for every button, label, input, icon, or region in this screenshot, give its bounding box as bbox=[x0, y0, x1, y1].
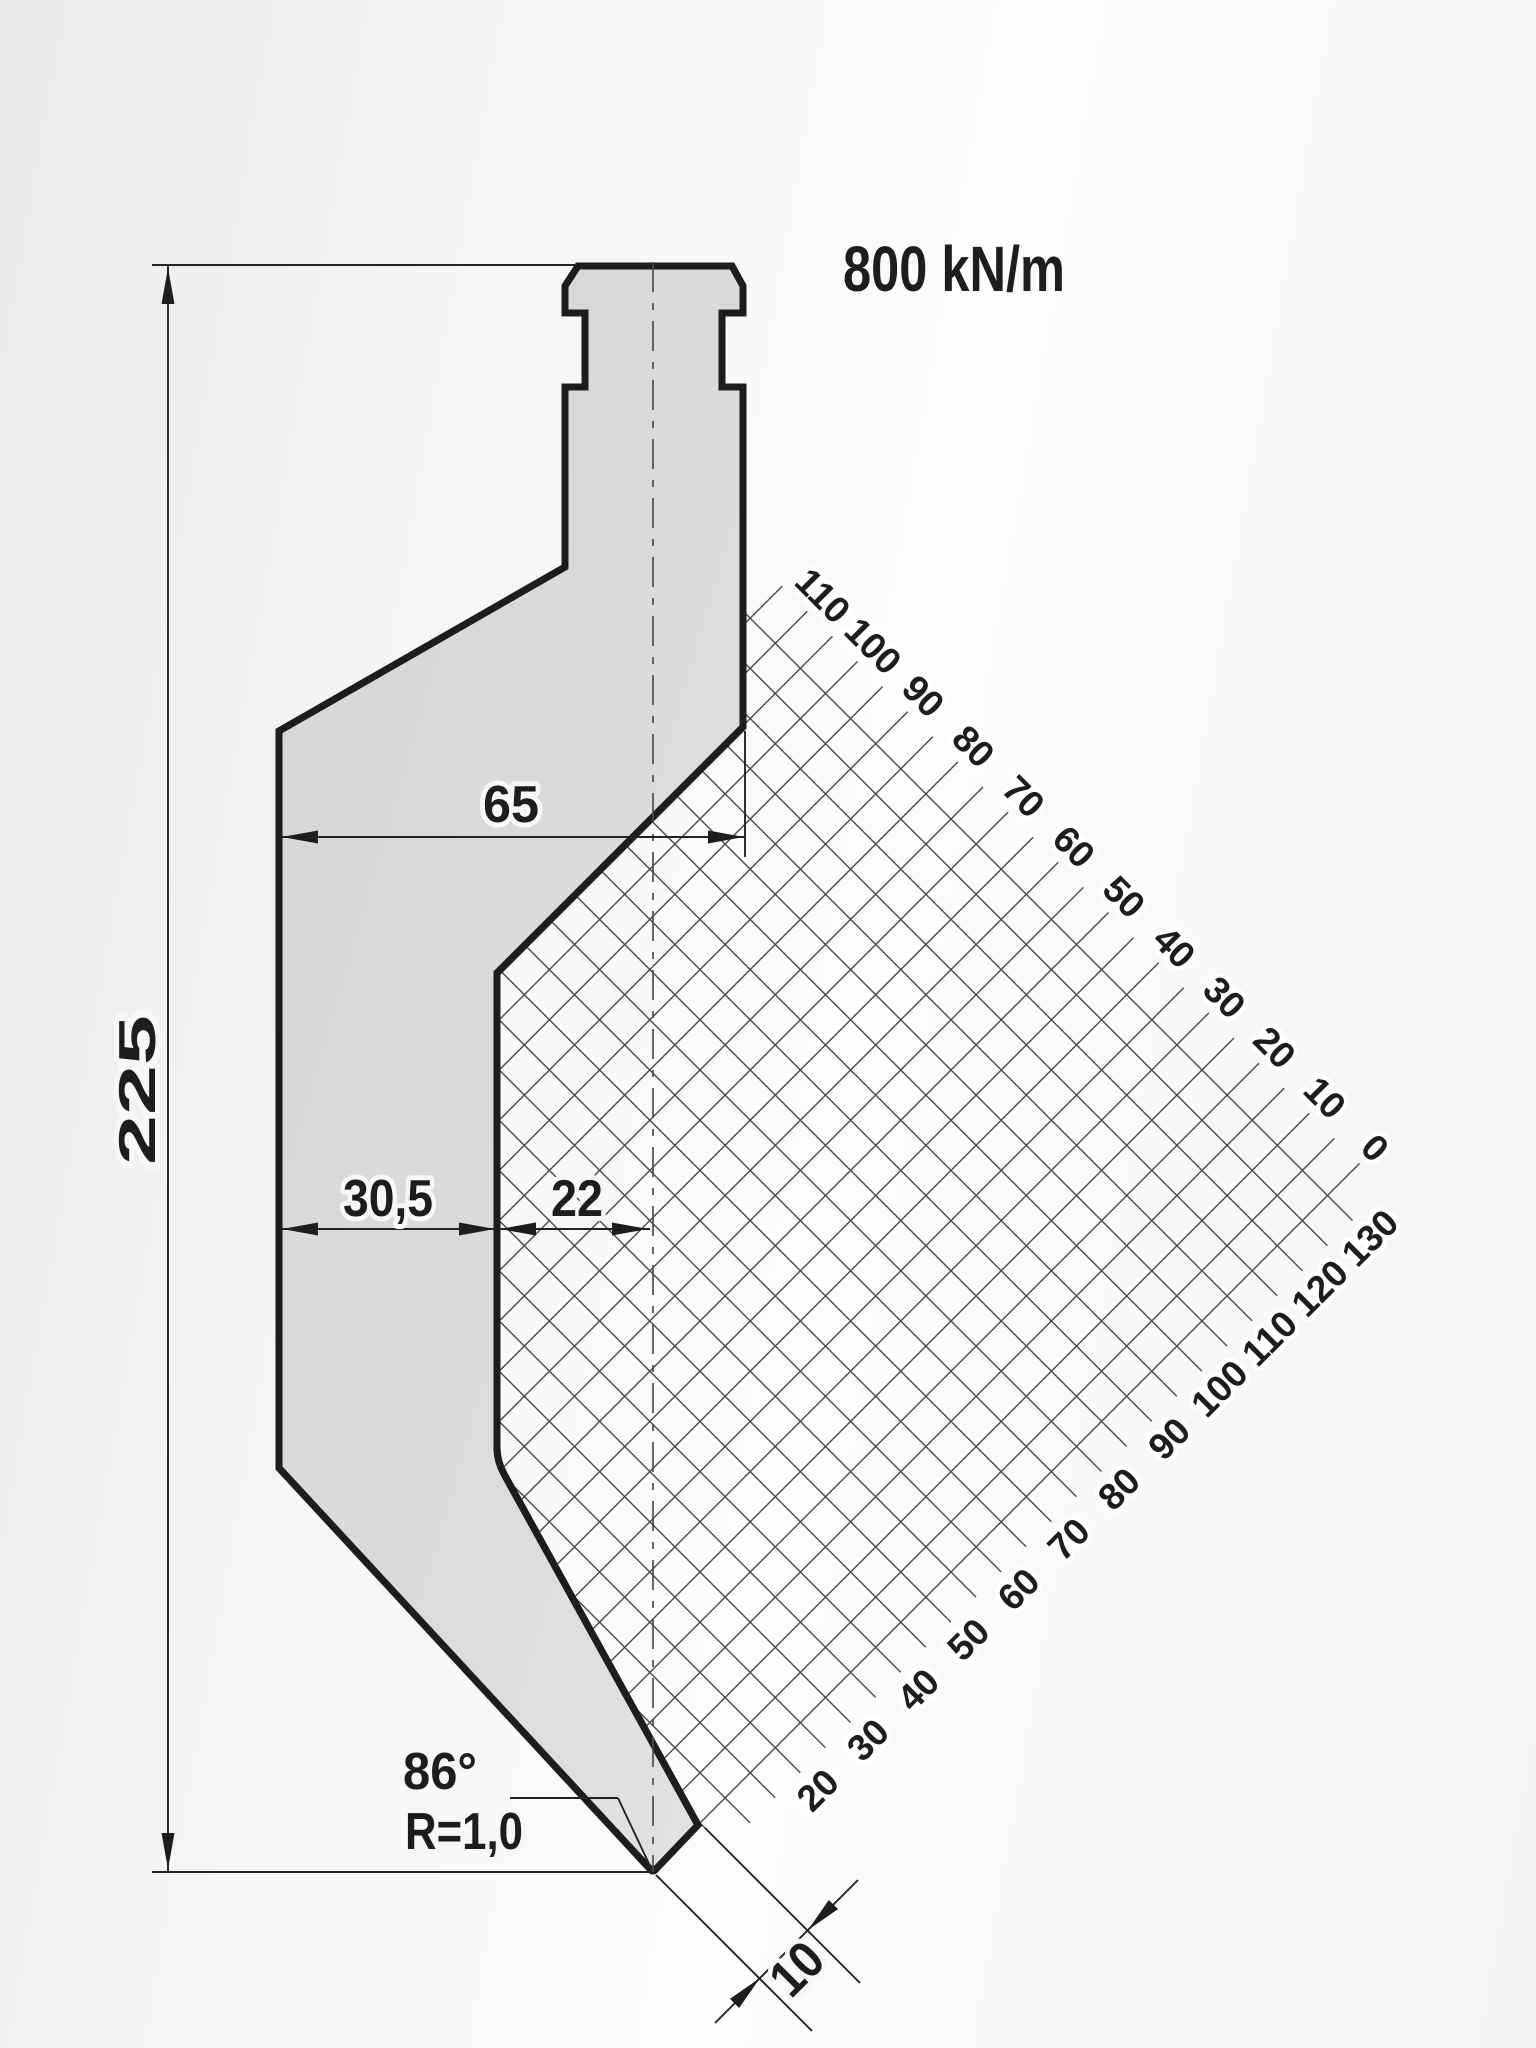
grid-line bbox=[430, 913, 1109, 1592]
dim-total-height: 225 bbox=[109, 1015, 167, 1165]
grid-line bbox=[430, 887, 1083, 1540]
dimension-arrowhead bbox=[803, 1900, 838, 1935]
dim-shoulder-width: 65 bbox=[483, 776, 539, 834]
dimension-lines bbox=[152, 265, 860, 2031]
dimension-arrowhead bbox=[730, 1973, 765, 2008]
punch-technical-drawing: 1101009080706050403020100203040506070809… bbox=[0, 0, 1536, 2048]
grid-line bbox=[430, 1113, 1309, 1992]
dimension-arrowhead bbox=[162, 268, 175, 304]
punch-body bbox=[279, 266, 743, 1871]
dimension-arrowhead bbox=[500, 1223, 536, 1236]
grid-scale-top-label: 0 bbox=[1353, 1126, 1397, 1170]
dimension-arrowhead bbox=[708, 831, 744, 844]
dim-body-width: 30,5 bbox=[343, 1170, 433, 1228]
dim-tip-angle: 86° bbox=[403, 1743, 477, 1801]
dimension-arrowhead bbox=[162, 1833, 175, 1869]
dim-tip-flat: 10 bbox=[758, 1930, 836, 2008]
dim-throat-offset: 22 bbox=[551, 1170, 603, 1228]
grid-line bbox=[430, 951, 1026, 1547]
grid-line bbox=[430, 900, 1051, 1521]
force-rating-label: 800 kN/m bbox=[843, 233, 1065, 305]
dimension-arrowhead bbox=[612, 1223, 648, 1236]
dim-tip-radius: R=1,0 bbox=[405, 1803, 523, 1861]
